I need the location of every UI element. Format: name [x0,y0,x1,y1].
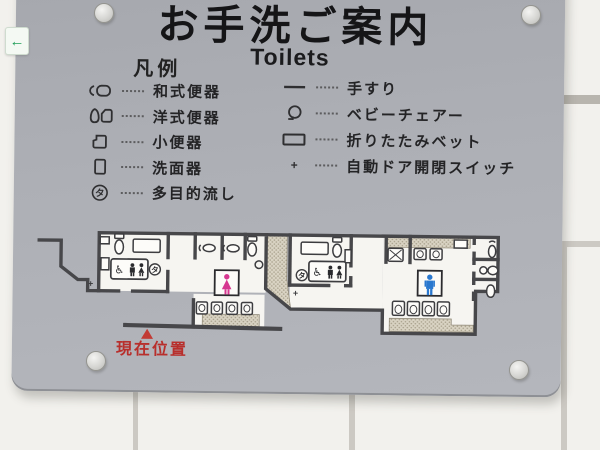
urinal-icon [407,301,419,315]
legend-leader-dots [315,138,337,140]
womens-room-pictogram [215,270,239,295]
tile-grout-vertical-right [561,247,567,450]
wall-fixture [101,258,109,270]
legend-row-washbasin: 洗面器 [84,154,237,181]
western-toilet-icon [333,238,342,258]
auto-door-switch-icon: + [278,156,310,174]
legend-leader-dots [121,166,143,168]
multipurpose-sink-icon: タ [84,183,116,201]
svg-text:+: + [291,158,298,172]
urinal-icon [437,302,449,316]
svg-text:♿: ♿ [312,267,322,279]
tile-grout-vertical-bottom-left [133,387,138,450]
wall-fixture [100,237,109,244]
folding-bed-icon [278,130,310,148]
exit-arrow-icon: ← [10,33,25,50]
stairs-hatch [266,236,291,307]
multipurpose-sink-icon: タ [149,264,160,275]
sign-subtitle-english: Toilets [15,41,564,75]
toilet-guide-sign: お手洗ご案内 Toilets 凡例 和式便器 洋式便器 小便器 [11,0,565,397]
auto-door-switch-icon: + [293,288,298,298]
washbasin [430,249,442,260]
legend-left-column: 和式便器 洋式便器 小便器 洗面器 タ [84,78,239,207]
folding-bed-icon [301,242,328,254]
screw-bottom-left [86,351,106,371]
current-location-label: 現在位置 [116,335,188,360]
legend-right-column: 手すり ベビーチェアー 折りたたみベット + 自動ドア開閉スイッチ [278,74,517,181]
urinal-icon [422,302,434,316]
folding-bed-icon [133,239,160,252]
legend-leader-dots [316,112,338,114]
washbasin [414,249,426,260]
room1-bottom-wall [99,291,168,292]
legend-label: 多目的流し [152,183,237,205]
western-toilet-icon [115,234,124,254]
urinal-icon [392,301,404,315]
screw-top-right [521,5,541,25]
urinal-icon [487,285,495,297]
baby-chair-icon [279,104,311,122]
legend-row-handrail: 手すり [279,74,517,103]
legend-row-baby-chair: ベビーチェアー [279,100,517,129]
mens-room-pictogram [418,271,442,296]
svg-text:♿: ♿ [114,264,124,276]
legend-leader-dots [122,90,144,92]
legend-label: 洗面器 [152,157,203,179]
accessible-toilet-sign: ♿ [111,259,148,279]
legend-leader-dots [316,86,338,88]
urinal-icon [84,132,116,150]
legend-leader-dots [122,115,144,117]
auto-door-switch-icon: + [88,279,93,289]
wall-fixture [454,240,467,248]
legend-row-squat-toilet: 和式便器 [85,78,238,105]
legend-row-auto-door-switch: + 自動ドア開閉スイッチ [278,152,516,181]
exit-arrow-sticker: ← [5,27,29,55]
legend-label: 自動ドア開閉スイッチ [346,155,516,178]
squat-toilet-icon [85,81,117,99]
legend-row-urinal: 小便器 [84,129,237,156]
screw-top-left [94,3,114,23]
legend-row-western-toilet: 洋式便器 [85,103,238,130]
handrail-icon [279,78,311,96]
legend-label: ベビーチェアー [347,103,465,125]
western-toilet-icon [248,237,257,257]
room2-left-wall [290,235,291,285]
legend-label: 洋式便器 [153,106,221,128]
svg-text:タ: タ [151,264,159,274]
legend-leader-dots [121,141,143,143]
svg-text:タ: タ [298,270,306,280]
legend-label: 手すり [347,77,398,99]
multipurpose-basin [388,248,403,261]
womens-counter-hatch [202,314,259,327]
screw-bottom-right [509,360,529,380]
tile-grout-vertical-bottom-center [349,391,355,450]
western-toilet-icon [85,107,117,125]
legend-leader-dots [315,164,337,166]
legend-label: 和式便器 [153,81,221,103]
legend-label: 折りたたみベット [346,129,482,152]
legend-leader-dots [121,192,143,194]
washbasin-icon [84,158,116,176]
legend-row-multipurpose-sink: タ 多目的流し [84,180,237,207]
svg-text:タ: タ [95,187,105,199]
western-toilet-icon [480,266,498,275]
legend-label: 小便器 [152,132,203,154]
toilet-floor-plan: ♿ タ + [32,216,504,362]
multipurpose-sink-icon: タ [296,270,307,281]
wall-washbasin [345,250,351,263]
legend-row-folding-bed: 折りたたみベット [278,126,516,155]
accessible-toilet-sign: ♿ [309,261,346,281]
